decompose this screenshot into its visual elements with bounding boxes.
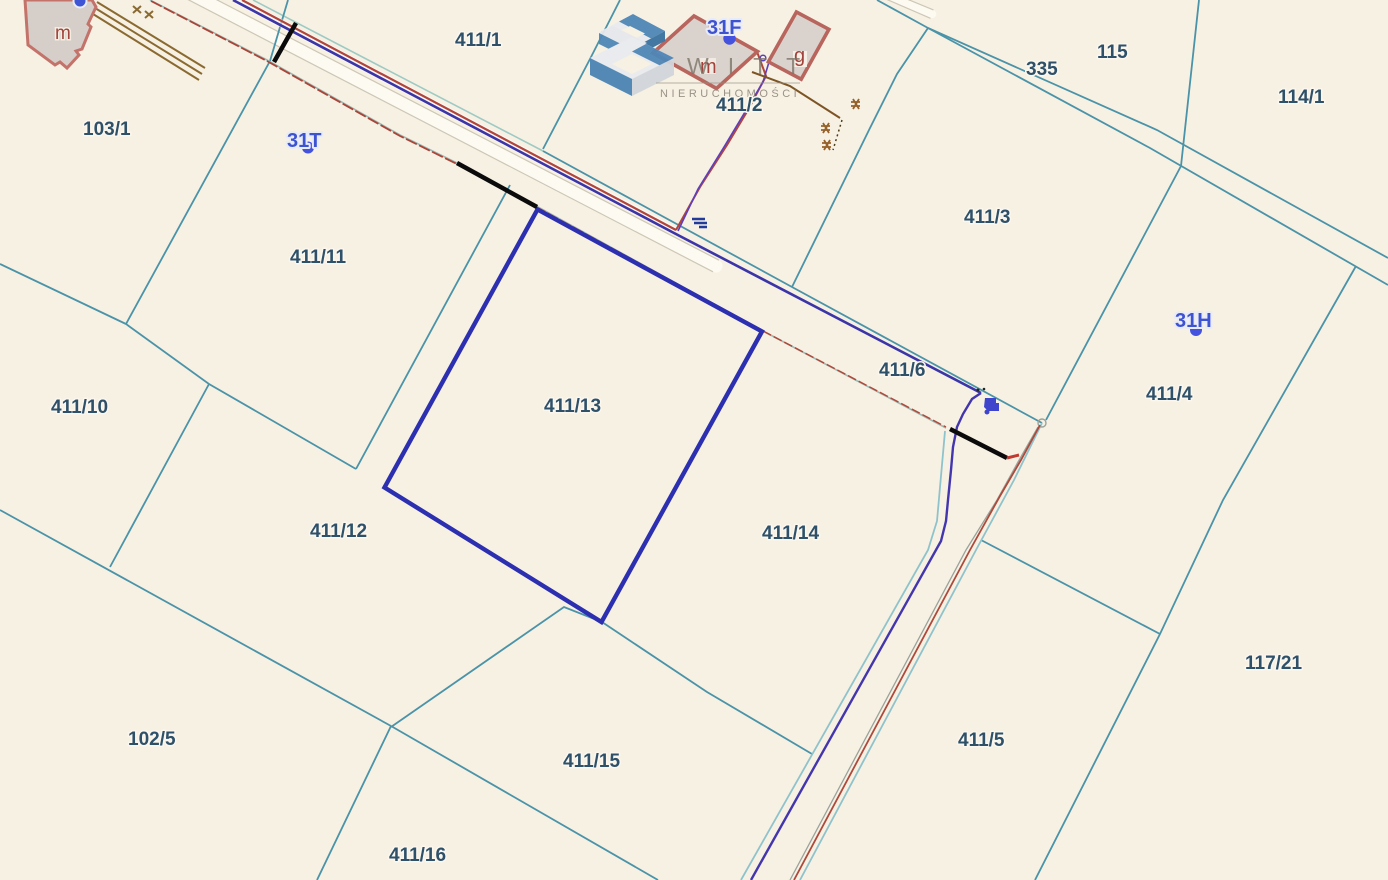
svg-text:411/16: 411/16 <box>389 845 446 866</box>
svg-text:102/5: 102/5 <box>128 729 176 750</box>
svg-text:411/3: 411/3 <box>964 207 1011 228</box>
svg-text:103/1: 103/1 <box>83 119 131 140</box>
svg-text:31T: 31T <box>287 130 321 152</box>
svg-text:411/1: 411/1 <box>455 30 502 51</box>
svg-text:411/6: 411/6 <box>879 360 926 381</box>
svg-text:115: 115 <box>1097 42 1128 63</box>
svg-text:m: m <box>55 23 71 44</box>
svg-text:31H: 31H <box>1175 310 1212 332</box>
svg-text:114/1: 114/1 <box>1278 87 1325 108</box>
svg-text:411/13: 411/13 <box>544 396 601 417</box>
svg-text:411/15: 411/15 <box>563 751 620 772</box>
svg-text:335: 335 <box>1026 59 1058 80</box>
svg-text:WITT: WITT <box>687 53 819 79</box>
svg-text:411/14: 411/14 <box>762 523 819 544</box>
svg-text:411/5: 411/5 <box>958 730 1005 751</box>
svg-text:411/2: 411/2 <box>716 95 763 116</box>
svg-text:411/10: 411/10 <box>51 397 108 418</box>
svg-text:31F: 31F <box>707 17 741 39</box>
svg-text:117/21: 117/21 <box>1245 653 1302 674</box>
svg-text:411/11: 411/11 <box>290 247 346 268</box>
svg-text:411/12: 411/12 <box>310 521 367 542</box>
svg-text:411/4: 411/4 <box>1146 384 1193 405</box>
